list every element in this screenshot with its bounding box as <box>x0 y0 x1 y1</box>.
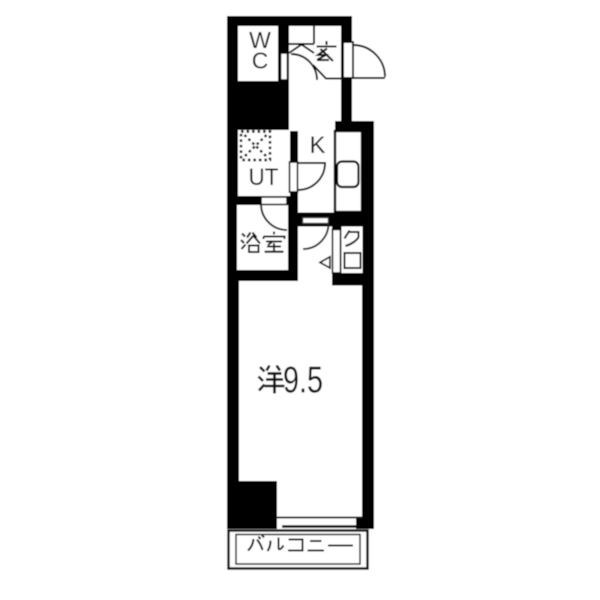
svg-text:UT: UT <box>249 164 279 191</box>
svg-text:K: K <box>309 132 325 159</box>
svg-text:C: C <box>252 48 269 74</box>
svg-text:9.5: 9.5 <box>283 360 323 401</box>
